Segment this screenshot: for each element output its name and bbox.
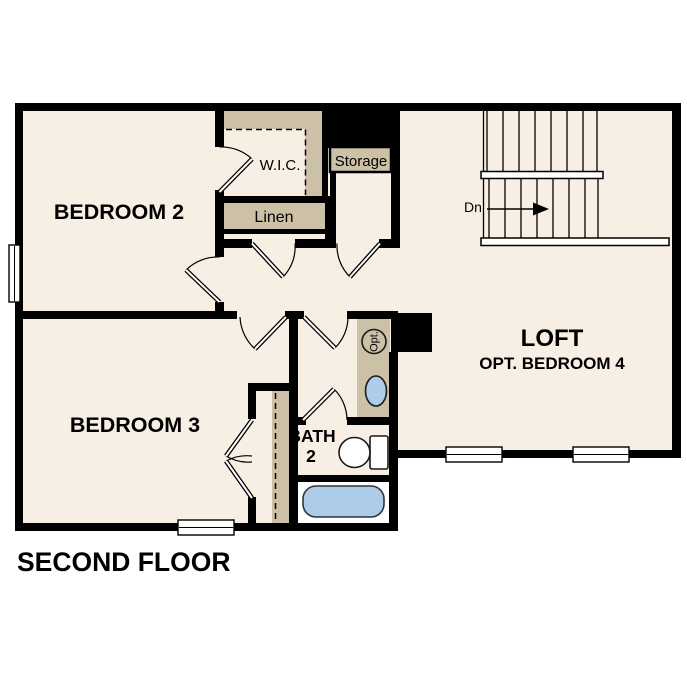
wall-segment <box>295 239 336 248</box>
wall-segment <box>389 352 398 523</box>
wall-segment <box>248 497 256 523</box>
exterior-cutout <box>398 458 687 531</box>
linen-label: Linen <box>254 209 293 226</box>
wall-segment <box>215 302 224 319</box>
window-bedroom2-left <box>9 245 20 302</box>
wall-segment <box>391 147 400 248</box>
loft-sublabel: OPT. BEDROOM 4 <box>479 354 625 373</box>
optional-fixture-label: Opt. <box>369 331 381 352</box>
bedroom3-label: BEDROOM 3 <box>70 413 200 437</box>
window-loft-right <box>573 447 629 462</box>
wall-segment <box>219 239 252 248</box>
loft-label: LOFT <box>521 325 584 352</box>
wall-segment <box>347 311 398 319</box>
toilet-tank <box>370 436 388 469</box>
stairs-down-label: Dn <box>464 199 482 215</box>
wall-segment <box>330 171 336 248</box>
wall-segment <box>248 383 256 419</box>
wall-segment <box>285 311 304 319</box>
wall-segment <box>391 313 432 352</box>
toilet-bowl <box>339 438 370 468</box>
wall-segment <box>672 103 681 458</box>
wall-segment <box>390 450 681 458</box>
bedroom2-label: BEDROOM 2 <box>54 200 184 224</box>
floor-plan-canvas: Dn <box>0 0 687 687</box>
wall-segment <box>322 103 400 148</box>
window-loft-left <box>446 447 502 462</box>
wall-segment <box>215 103 224 147</box>
stair-rail <box>481 172 603 179</box>
wic-label: W.I.C. <box>260 157 301 174</box>
wic-shelf-right <box>305 111 322 196</box>
wall-segment <box>289 319 298 523</box>
stair-rail <box>481 238 669 246</box>
wall-segment <box>215 229 333 234</box>
window-bedroom3-bottom <box>178 520 234 535</box>
bedroom3-closet-shelf <box>272 391 289 523</box>
wall-segment <box>215 196 333 203</box>
storage-label: Storage <box>335 153 388 170</box>
wall-segment <box>15 311 237 319</box>
sink-basin <box>366 376 387 406</box>
wall-segment <box>347 417 389 425</box>
page-title: SECOND FLOOR <box>17 547 230 577</box>
floor-plan-page: Dn <box>0 0 687 687</box>
wall-segment <box>298 475 389 482</box>
bath-label-line2: 2 <box>306 446 316 466</box>
bathtub <box>303 486 384 517</box>
bath-label-line1: BATH <box>288 426 335 446</box>
